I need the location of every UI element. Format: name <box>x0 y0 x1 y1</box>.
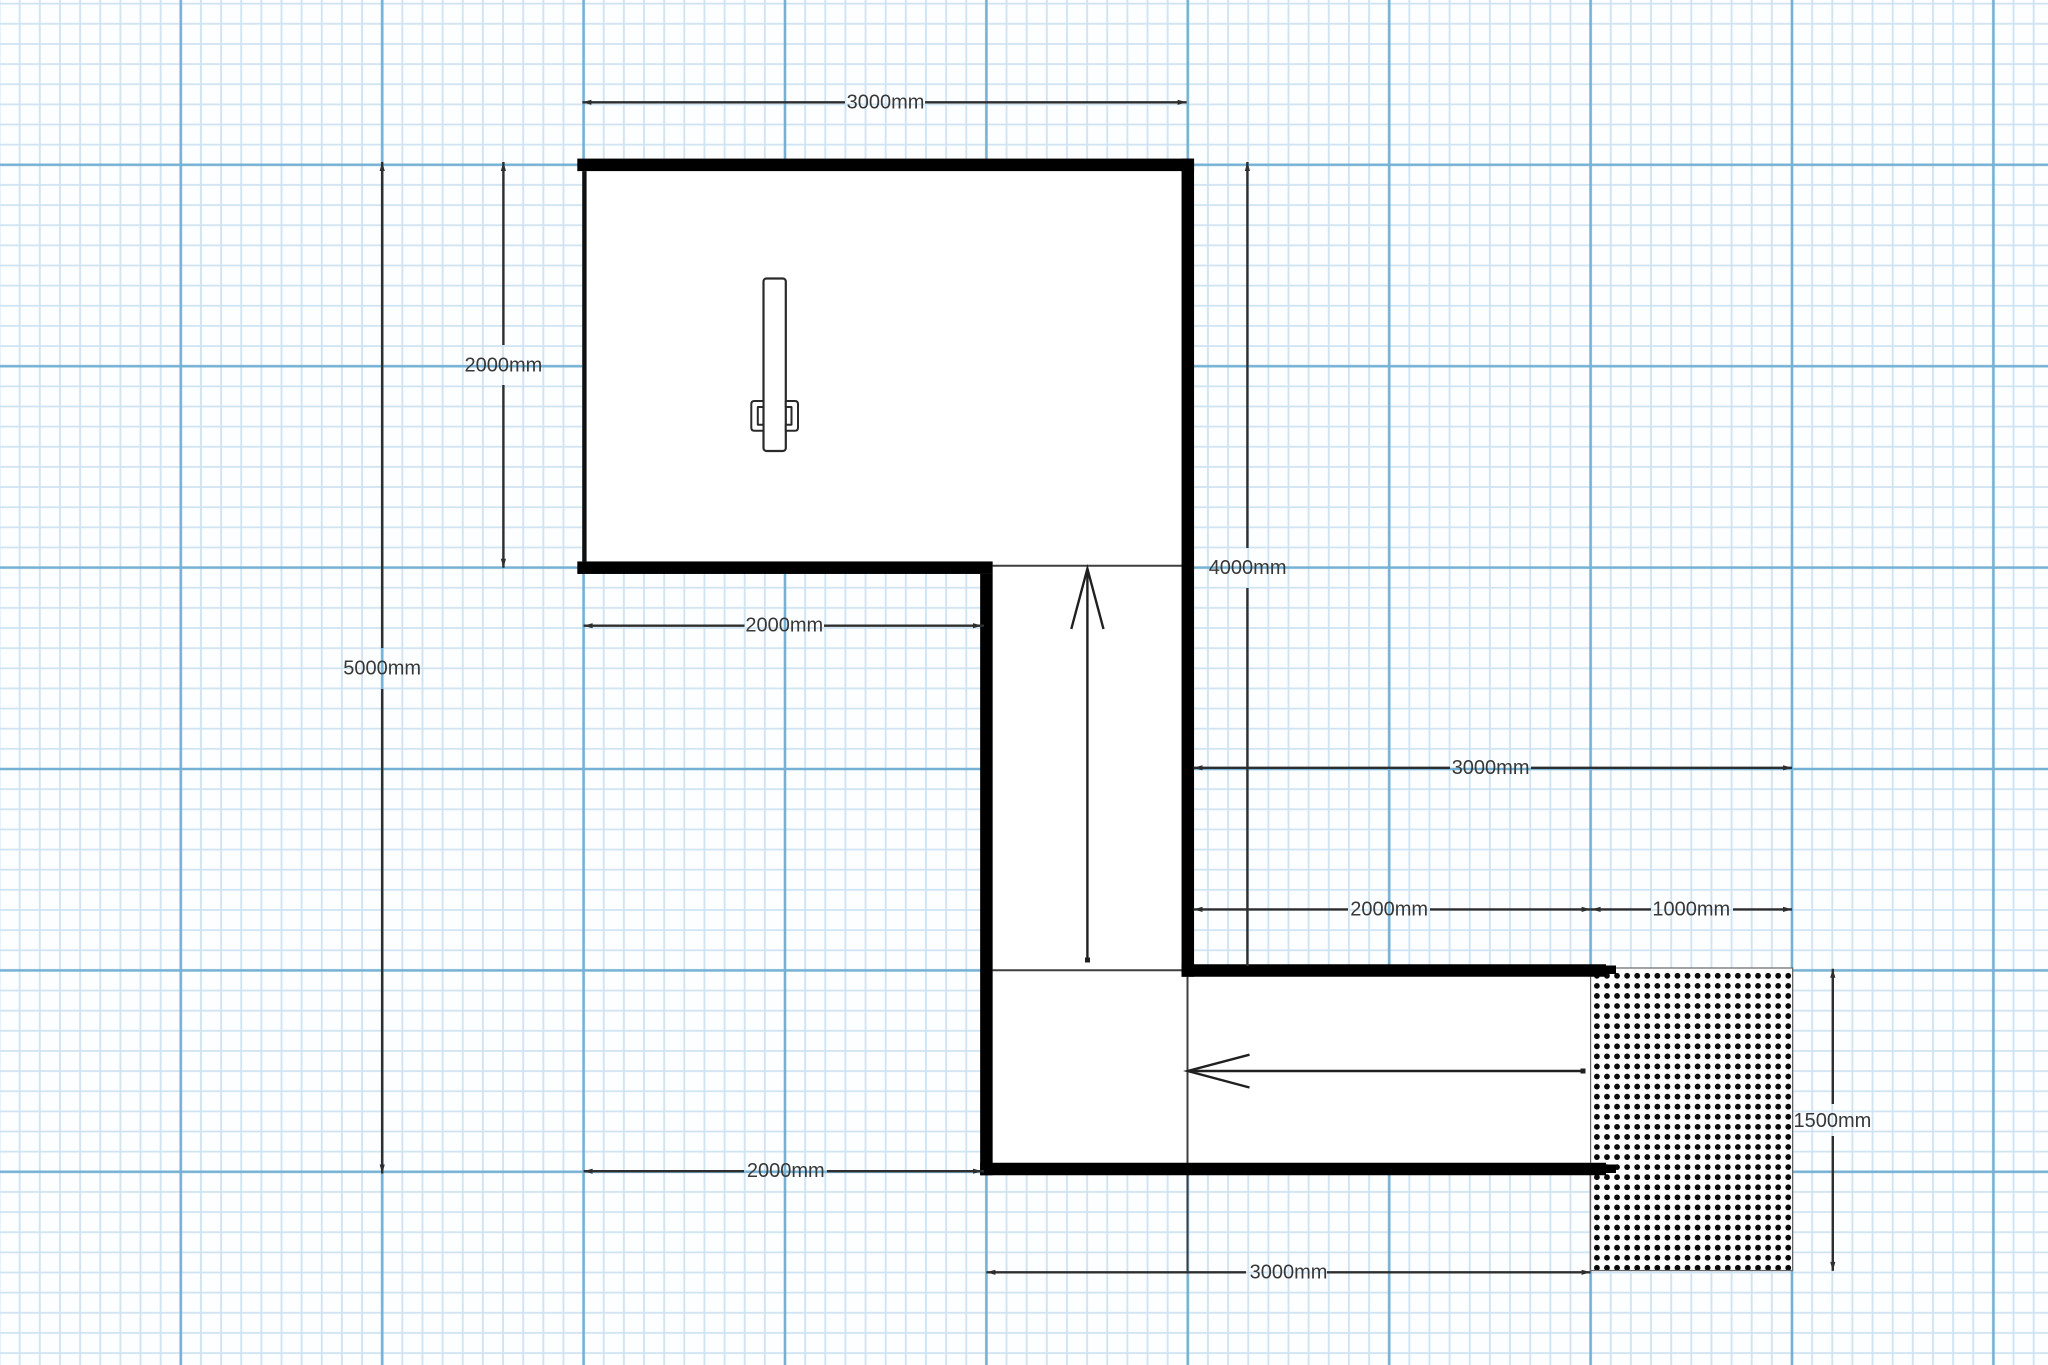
svg-text:2000mm: 2000mm <box>745 615 823 637</box>
svg-text:1000mm: 1000mm <box>1652 898 1730 920</box>
svg-text:5000mm: 5000mm <box>343 658 421 680</box>
svg-text:3000mm: 3000mm <box>1452 757 1530 779</box>
svg-text:4000mm: 4000mm <box>1209 557 1287 579</box>
svg-text:1500mm: 1500mm <box>1793 1110 1871 1132</box>
svg-text:2000mm: 2000mm <box>747 1160 825 1182</box>
svg-text:2000mm: 2000mm <box>464 355 542 377</box>
svg-text:3000mm: 3000mm <box>847 91 925 113</box>
svg-text:3000mm: 3000mm <box>1250 1261 1328 1283</box>
svg-text:2000mm: 2000mm <box>1350 898 1428 920</box>
